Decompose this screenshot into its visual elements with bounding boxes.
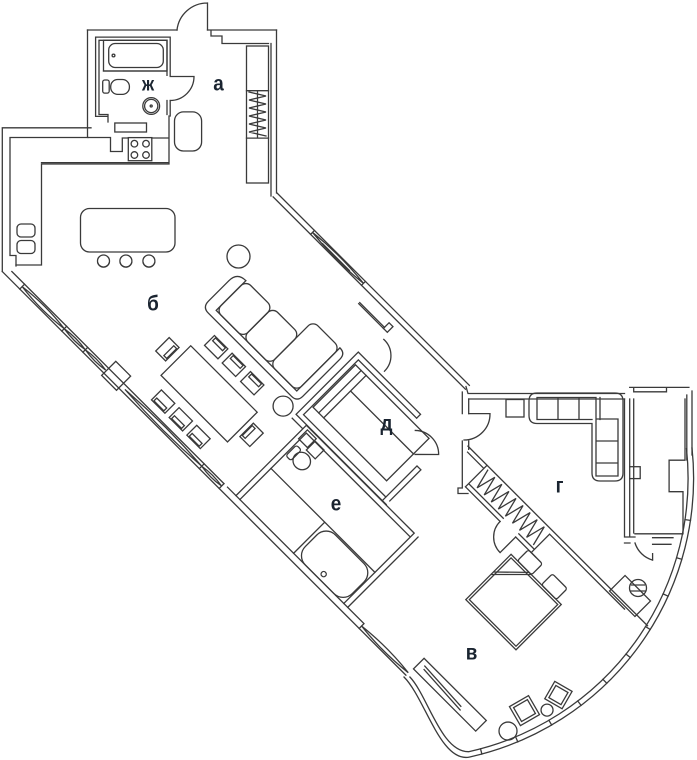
svg-text:д: д [380,413,392,436]
svg-text:б: б [147,293,159,316]
svg-text:е: е [331,493,342,516]
svg-text:в: в [466,642,478,665]
svg-text:а: а [213,73,224,96]
svg-text:ж: ж [141,74,154,95]
svg-text:г: г [556,475,564,498]
